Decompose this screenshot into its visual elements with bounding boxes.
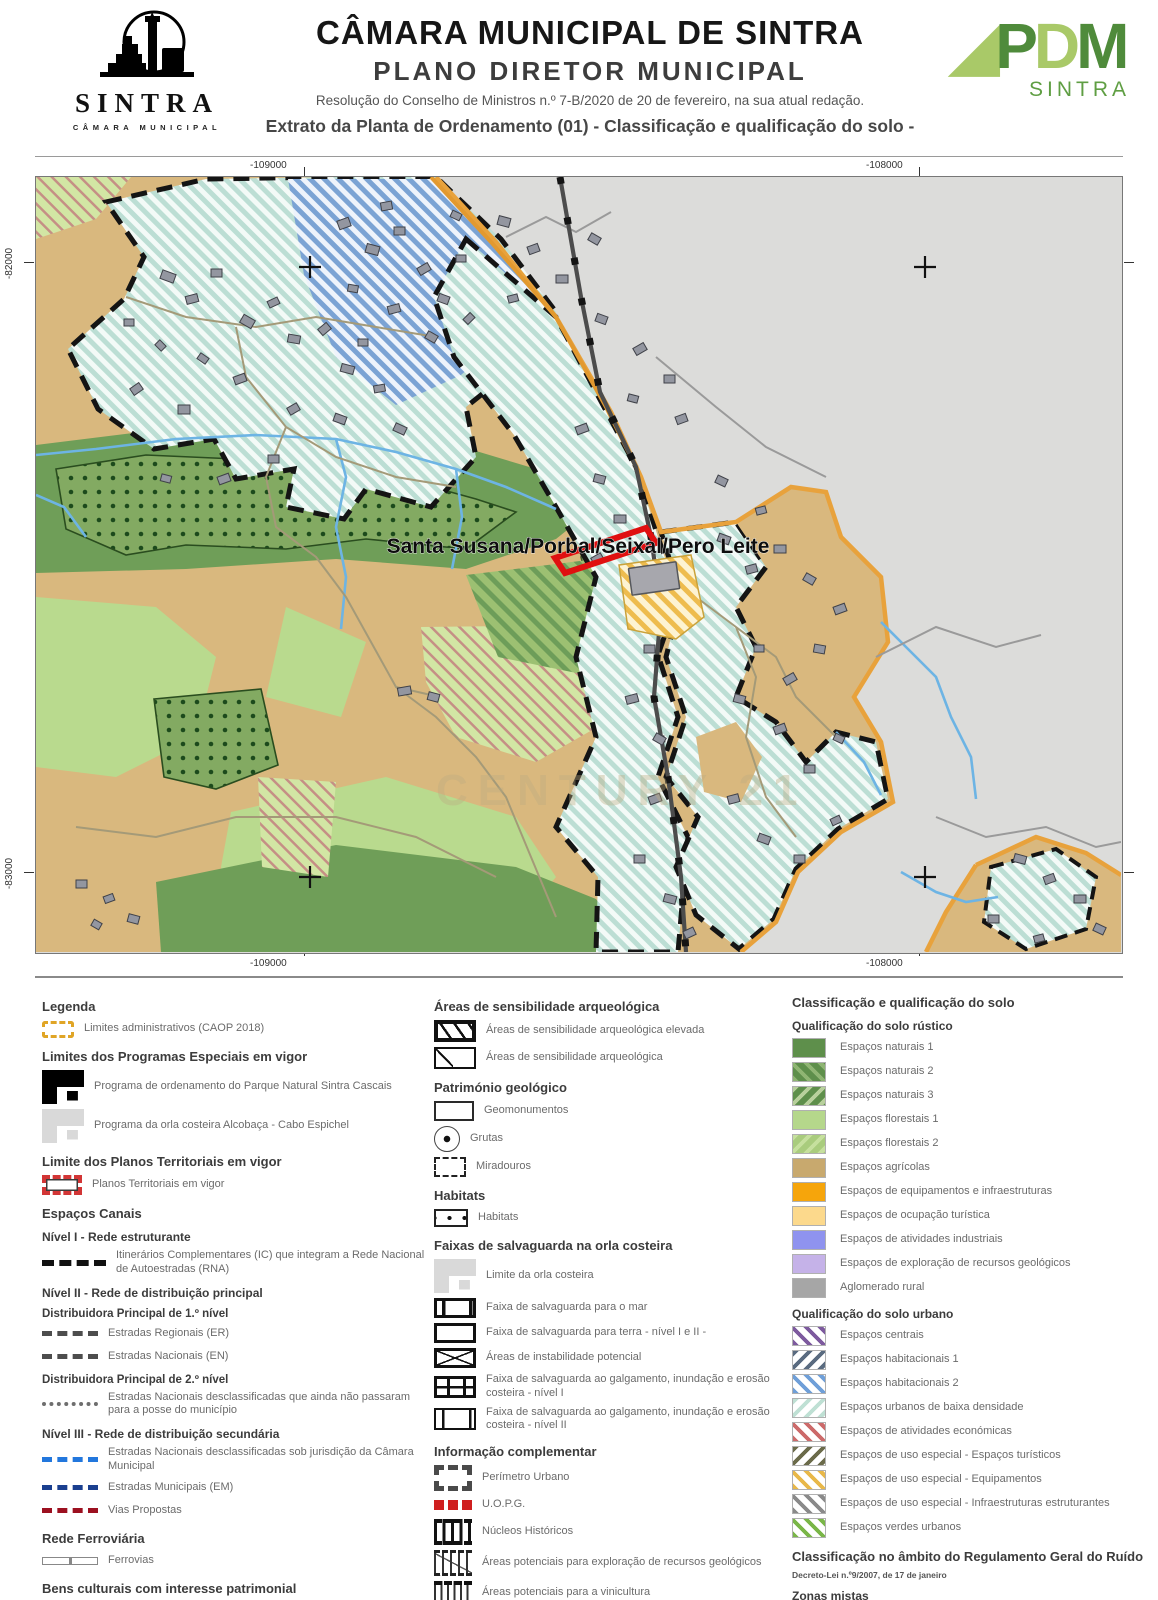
equipment-building	[628, 562, 679, 595]
legend-item: Áreas potenciais para a vinicultura	[434, 1581, 784, 1600]
legend-item: Estradas Nacionais desclassificadas sob …	[42, 1446, 427, 1474]
legend-item: U.O.P.G.	[434, 1496, 784, 1514]
legend-heading: Zonas mistas	[792, 1589, 1152, 1600]
legend-item: Áreas potenciais para exploração de recu…	[434, 1550, 784, 1576]
extract-title: Extrato da Planta de Ordenamento (01) - …	[180, 116, 1000, 137]
legend-item: Grutas	[434, 1126, 784, 1152]
legend-swatch	[792, 1182, 826, 1202]
legend-item: Programa de ordenamento do Parque Natura…	[42, 1070, 427, 1104]
legend-heading: Classificação e qualificação do solo	[792, 995, 1152, 1010]
legend-heading: Distribuidora Principal de 1.º nível	[42, 1308, 427, 1320]
sintra-logo-text: SINTRA	[52, 88, 242, 119]
legend-item-label: Espaços centrais	[840, 1329, 924, 1343]
er-line-icon	[42, 1331, 98, 1336]
legend-item: Habitats	[434, 1209, 784, 1227]
legend-item-label: Espaços naturais 1	[840, 1041, 934, 1055]
legend-item-label: Espaços de uso especial - Infraestrutura…	[840, 1497, 1110, 1511]
legend-item-label: Espaços florestais 1	[840, 1113, 938, 1127]
pdm-logo: ◢PDM SINTRA	[950, 18, 1130, 102]
map-coord-top-2: -108000	[866, 160, 903, 171]
legend-swatch	[792, 1158, 826, 1178]
legend-item-label: Limites administrativos (CAOP 2018)	[84, 1022, 264, 1036]
legend-item-label: Grutas	[470, 1132, 503, 1146]
rec-geo-icon	[434, 1550, 472, 1576]
legend-item-label: Espaços de ocupação turística	[840, 1209, 990, 1223]
legend-item-label: Espaços de exploração de recursos geológ…	[840, 1257, 1071, 1271]
legend-item-label: Planos Territoriais em vigor	[92, 1178, 224, 1192]
legend-item-label: Áreas potenciais para exploração de recu…	[482, 1556, 761, 1570]
legend-swatch	[792, 1062, 826, 1082]
plan-title: PLANO DIRETOR MUNICIPAL	[250, 56, 930, 87]
orla-icon	[42, 1109, 84, 1143]
legend-heading: Nível II - Rede de distribuição principa…	[42, 1286, 427, 1300]
legend-heading: Espaços Canais	[42, 1206, 427, 1221]
galgamento2-icon	[434, 1408, 476, 1430]
legend-swatch	[792, 1494, 826, 1514]
legend-item-label: Áreas de instabilidade potencial	[486, 1351, 641, 1365]
legend-item: Áreas de sensibilidade arqueológica elev…	[434, 1020, 784, 1042]
instabilidade-icon	[434, 1348, 476, 1368]
orla-limite-icon	[434, 1259, 476, 1293]
miradouros-icon	[434, 1157, 466, 1177]
legend-item-label: Áreas potenciais para a vinicultura	[482, 1586, 650, 1600]
legend-heading: Bens culturais com interesse patrimonial	[42, 1581, 427, 1596]
map-coord-bottom-2: -108000	[866, 958, 903, 969]
legend-swatch	[792, 1350, 826, 1370]
map-tick	[304, 167, 305, 176]
legend-item-label: Estradas Municipais (EM)	[108, 1481, 233, 1495]
map-coord-bottom-1: -109000	[250, 958, 287, 969]
legend-item: Espaços de atividades industriais	[792, 1230, 1152, 1250]
header-divider	[35, 156, 1123, 157]
map-vineyard-hatch-area	[258, 777, 336, 877]
legend-heading: Qualificação do solo urbano	[792, 1307, 1152, 1321]
legend-item-label: Estradas Regionais (ER)	[108, 1327, 229, 1341]
area-label: Santa Susana/Porbal/Seixal/Pero Leite	[387, 535, 770, 558]
planos-icon	[42, 1175, 82, 1195]
pdm-logo-letters: ◢PDM	[950, 18, 1130, 76]
legend-item-label: Espaços de atividades económicas	[840, 1425, 1012, 1439]
legend-item: Espaços florestais 1	[792, 1110, 1152, 1130]
habitats-icon	[434, 1209, 468, 1227]
legend-item: Aglomerado rural	[792, 1278, 1152, 1298]
legend-item: Estradas Regionais (ER)	[42, 1325, 427, 1343]
legend-heading: Limites dos Programas Especiais em vigor	[42, 1049, 427, 1064]
legend-item: Vias Propostas	[42, 1502, 427, 1520]
legend-heading: Qualificação do solo rústico	[792, 1019, 1152, 1033]
legend-item: Estradas Nacionais desclassificadas que …	[42, 1391, 427, 1419]
legend-item: Áreas de sensibilidade arqueológica	[434, 1047, 784, 1069]
legend-item: Espaços de equipamentos e infraestrutura…	[792, 1182, 1152, 1202]
pnsc-icon	[42, 1070, 84, 1104]
legend-item-label: Espaços de equipamentos e infraestrutura…	[840, 1185, 1052, 1199]
perimetro-icon	[434, 1465, 472, 1491]
legend-item-label: Faixa de salvaguarda ao galgamento, inun…	[486, 1406, 784, 1434]
en-cm-line-icon	[42, 1457, 98, 1462]
legend-item-label: Perímetro Urbano	[482, 1471, 569, 1485]
legend-item-label: Limite da orla costeira	[486, 1269, 594, 1283]
legend-item: Espaços urbanos de baixa densidade	[792, 1398, 1152, 1418]
legend-swatch	[792, 1110, 826, 1130]
legend-swatch	[792, 1422, 826, 1442]
legend-item-label: Habitats	[478, 1211, 518, 1225]
legend-item: Áreas de instabilidade potencial	[434, 1348, 784, 1368]
caop-icon	[42, 1021, 74, 1038]
header-titles: CÂMARA MUNICIPAL DE SINTRA PLANO DIRETOR…	[250, 14, 930, 108]
legend-heading: Decreto-Lei n.º9/2007, de 17 de janeiro	[792, 1570, 1152, 1580]
en-desc-line-icon	[42, 1402, 98, 1406]
watermark-text: CENTURY 21	[436, 766, 807, 815]
legend-item: Geomonumentos	[434, 1101, 784, 1121]
legend-item-label: Espaços de uso especial - Equipamentos	[840, 1473, 1042, 1487]
legend-item-label: Espaços agrícolas	[840, 1161, 930, 1175]
header: SINTRA CÂMARA MUNICIPAL CÂMARA MUNICIPAL…	[0, 0, 1158, 156]
legend-item: Espaços de ocupação turística	[792, 1206, 1152, 1226]
legend-item-label: Áreas de sensibilidade arqueológica	[486, 1051, 663, 1065]
legend-swatch	[792, 1374, 826, 1394]
legend-item-label: Espaços habitacionais 1	[840, 1353, 959, 1367]
legend-item: Espaços habitacionais 1	[792, 1350, 1152, 1370]
legend-item-label: Espaços habitacionais 2	[840, 1377, 959, 1391]
legend-item: Espaços naturais 3	[792, 1086, 1152, 1106]
galgamento1-icon	[434, 1376, 476, 1398]
legend-swatch	[792, 1086, 826, 1106]
legend-item-label: Geomonumentos	[484, 1104, 568, 1118]
legend-heading: Classificação no âmbito do Regulamento G…	[792, 1549, 1152, 1564]
legend-heading: Nível III - Rede de distribuição secundá…	[42, 1427, 427, 1441]
map-coord-left-2: -83000	[4, 858, 15, 889]
legend-item: Perímetro Urbano	[434, 1465, 784, 1491]
legend-item: Programa da orla costeira Alcobaça - Cab…	[42, 1109, 427, 1143]
en-line-icon	[42, 1354, 98, 1359]
legend-item: Limites administrativos (CAOP 2018)	[42, 1020, 427, 1038]
legend-swatch	[792, 1398, 826, 1418]
legend-column-soil-classification: Classificação e qualificação do soloQual…	[792, 984, 1152, 1600]
faixa-mar-icon	[434, 1298, 476, 1318]
legend-item-label: Estradas Nacionais (EN)	[108, 1350, 228, 1364]
legend-item: Espaços naturais 1	[792, 1038, 1152, 1058]
legend-item: Ferrovias	[42, 1552, 427, 1570]
legend-item: Faixa de salvaguarda ao galgamento, inun…	[434, 1406, 784, 1434]
legend-swatch	[792, 1470, 826, 1490]
legend-item-label: Estradas Nacionais desclassificadas sob …	[108, 1446, 427, 1474]
legend-item-label: Faixa de salvaguarda para o mar	[486, 1301, 647, 1315]
legend-item: Itinerários Complementares (IC) que inte…	[42, 1249, 427, 1277]
map-tick	[24, 872, 34, 873]
legend-heading: Habitats	[434, 1188, 784, 1203]
legend-item: Miradouros	[434, 1157, 784, 1177]
em-line-icon	[42, 1485, 98, 1490]
legend-item-label: Espaços de uso especial - Espaços turíst…	[840, 1449, 1061, 1463]
legend-item: Estradas Nacionais (EN)	[42, 1348, 427, 1366]
legend-swatch	[792, 1038, 826, 1058]
legend-item: Estradas Municipais (EM)	[42, 1479, 427, 1497]
legend-item-label: Programa da orla costeira Alcobaça - Cab…	[94, 1119, 349, 1133]
legend-item-label: Aglomerado rural	[840, 1281, 924, 1295]
map-viewport[interactable]: CENTURY 21 Santa Susana/Porbal/Seixal/Pe…	[35, 176, 1123, 954]
legend-item: Espaços agrícolas	[792, 1158, 1152, 1178]
legend-item: Planos Territoriais em vigor	[42, 1175, 427, 1195]
sintra-castle-icon	[92, 8, 202, 86]
legend-item-label: Núcleos Históricos	[482, 1525, 573, 1539]
legend-item: Espaços de uso especial - Equipamentos	[792, 1470, 1152, 1490]
legend-heading: Limite dos Planos Territoriais em vigor	[42, 1154, 427, 1169]
legend-item-label: Espaços verdes urbanos	[840, 1521, 961, 1535]
resolution-text: Resolução do Conselho de Ministros n.º 7…	[250, 93, 930, 108]
nucleos-icon	[434, 1519, 472, 1545]
legend-item: Espaços de exploração de recursos geológ…	[792, 1254, 1152, 1274]
page: SINTRA CÂMARA MUNICIPAL CÂMARA MUNICIPAL…	[0, 0, 1158, 1600]
legend-item-label: Espaços florestais 2	[840, 1137, 938, 1151]
legend-item-label: Espaços de atividades industriais	[840, 1233, 1003, 1247]
map-legend-divider	[35, 976, 1123, 978]
legend-item-label: Espaços naturais 2	[840, 1065, 934, 1079]
geomon-icon	[434, 1101, 474, 1121]
legend-item-label: Estradas Nacionais desclassificadas que …	[108, 1391, 427, 1419]
sens-elevada-icon	[434, 1020, 476, 1042]
vinicultura-icon	[434, 1581, 472, 1600]
ordinance-map[interactable]: CENTURY 21 Santa Susana/Porbal/Seixal/Pe…	[36, 177, 1121, 952]
legend-swatch	[792, 1206, 826, 1226]
map-tick	[1124, 262, 1134, 263]
legend-item: Espaços de uso especial - Espaços turíst…	[792, 1446, 1152, 1466]
legend-item-label: Áreas de sensibilidade arqueológica elev…	[486, 1024, 704, 1038]
legend-item: Núcleos Históricos	[434, 1519, 784, 1545]
faixa-terra-icon	[434, 1323, 476, 1343]
legend-item-label: Faixa de salvaguarda ao galgamento, inun…	[486, 1373, 784, 1401]
legend-item-label: Espaços naturais 3	[840, 1089, 934, 1103]
legend-heading: Faixas de salvaguarda na orla costeira	[434, 1238, 784, 1253]
legend-item: Limite da orla costeira	[434, 1259, 784, 1293]
legend-swatch	[792, 1326, 826, 1346]
map-tick	[1124, 872, 1134, 873]
legend-heading: Nível I - Rede estruturante	[42, 1230, 427, 1244]
vias-line-icon	[42, 1508, 98, 1513]
sens-icon	[434, 1047, 476, 1069]
legend-item-label: U.O.P.G.	[482, 1498, 525, 1512]
legend-heading: Áreas de sensibilidade arqueológica	[434, 999, 784, 1014]
map-tick	[919, 167, 920, 176]
legend-heading: Rede Ferroviária	[42, 1531, 427, 1546]
sintra-municipality-logo: SINTRA CÂMARA MUNICIPAL	[52, 8, 242, 132]
legend-item-label: Faixa de salvaguarda para terra - nível …	[486, 1326, 706, 1340]
legend-swatch	[792, 1254, 826, 1274]
ferrovia-icon	[42, 1557, 98, 1565]
legend-item-label: Itinerários Complementares (IC) que inte…	[116, 1249, 427, 1277]
legend-item-label: Vias Propostas	[108, 1504, 182, 1518]
legend-swatch	[792, 1278, 826, 1298]
legend-heading: Informação complementar	[434, 1444, 784, 1459]
legend-item: Espaços de atividades económicas	[792, 1422, 1152, 1442]
legend-item: Faixa de salvaguarda para o mar	[434, 1298, 784, 1318]
legend-item-label: Espaços urbanos de baixa densidade	[840, 1401, 1023, 1415]
legend-item-label: Programa de ordenamento do Parque Natura…	[94, 1080, 392, 1094]
legend-item: Espaços florestais 2	[792, 1134, 1152, 1154]
ic-line-icon	[42, 1260, 106, 1266]
grutas-icon	[434, 1126, 460, 1152]
legend-item: Espaços centrais	[792, 1326, 1152, 1346]
legend-item: Espaços habitacionais 2	[792, 1374, 1152, 1394]
legend-heading: Património geológico	[434, 1080, 784, 1095]
map-coord-left-1: -82000	[4, 248, 15, 279]
legend-item-label: Miradouros	[476, 1160, 531, 1174]
legend-item: Espaços de uso especial - Infraestrutura…	[792, 1494, 1152, 1514]
legend-heading: Distribuidora Principal de 2.º nível	[42, 1374, 427, 1386]
legend-item-label: Ferrovias	[108, 1554, 154, 1568]
legend-column-limits: LegendaLimites administrativos (CAOP 201…	[42, 988, 427, 1600]
map-coord-top-1: -109000	[250, 160, 287, 171]
legend-swatch	[792, 1518, 826, 1538]
legend-swatch	[792, 1446, 826, 1466]
map-tick	[24, 262, 34, 263]
legend-swatch	[792, 1134, 826, 1154]
legend-item: Faixa de salvaguarda ao galgamento, inun…	[434, 1373, 784, 1401]
uopg-icon	[434, 1500, 472, 1510]
page-title: CÂMARA MUNICIPAL DE SINTRA	[250, 14, 930, 52]
legend-item: Faixa de salvaguarda para terra - nível …	[434, 1323, 784, 1343]
legend-item: Espaços naturais 2	[792, 1062, 1152, 1082]
legend-item: Espaços verdes urbanos	[792, 1518, 1152, 1538]
legend-column-archaeology-coast: Áreas de sensibilidade arqueológicaÁreas…	[434, 988, 784, 1600]
legend-swatch	[792, 1230, 826, 1250]
legend-heading: Legenda	[42, 999, 427, 1014]
